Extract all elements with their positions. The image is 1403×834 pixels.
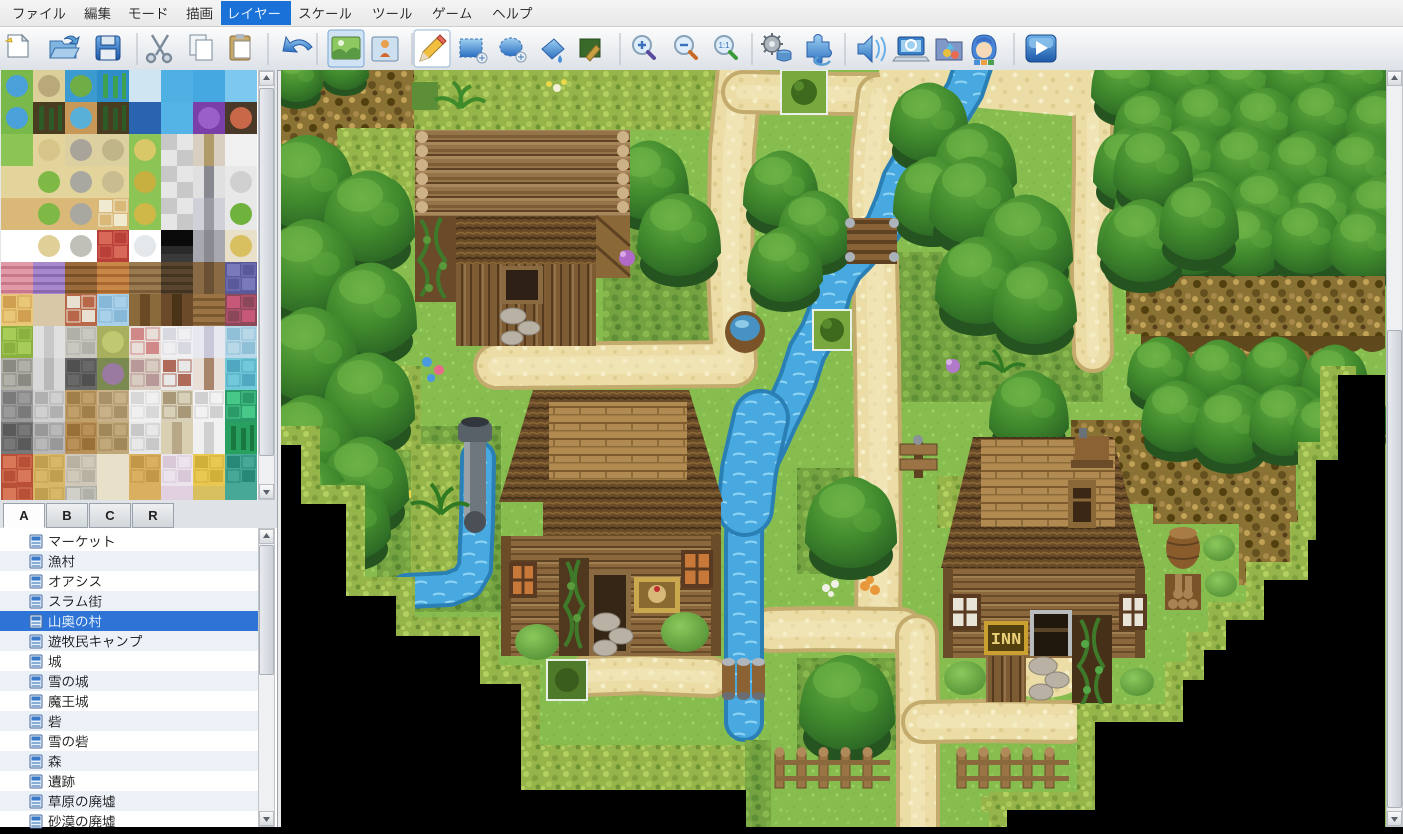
svg-text:1:1: 1:1 <box>718 41 730 50</box>
svg-text:INN: INN <box>991 631 1022 650</box>
